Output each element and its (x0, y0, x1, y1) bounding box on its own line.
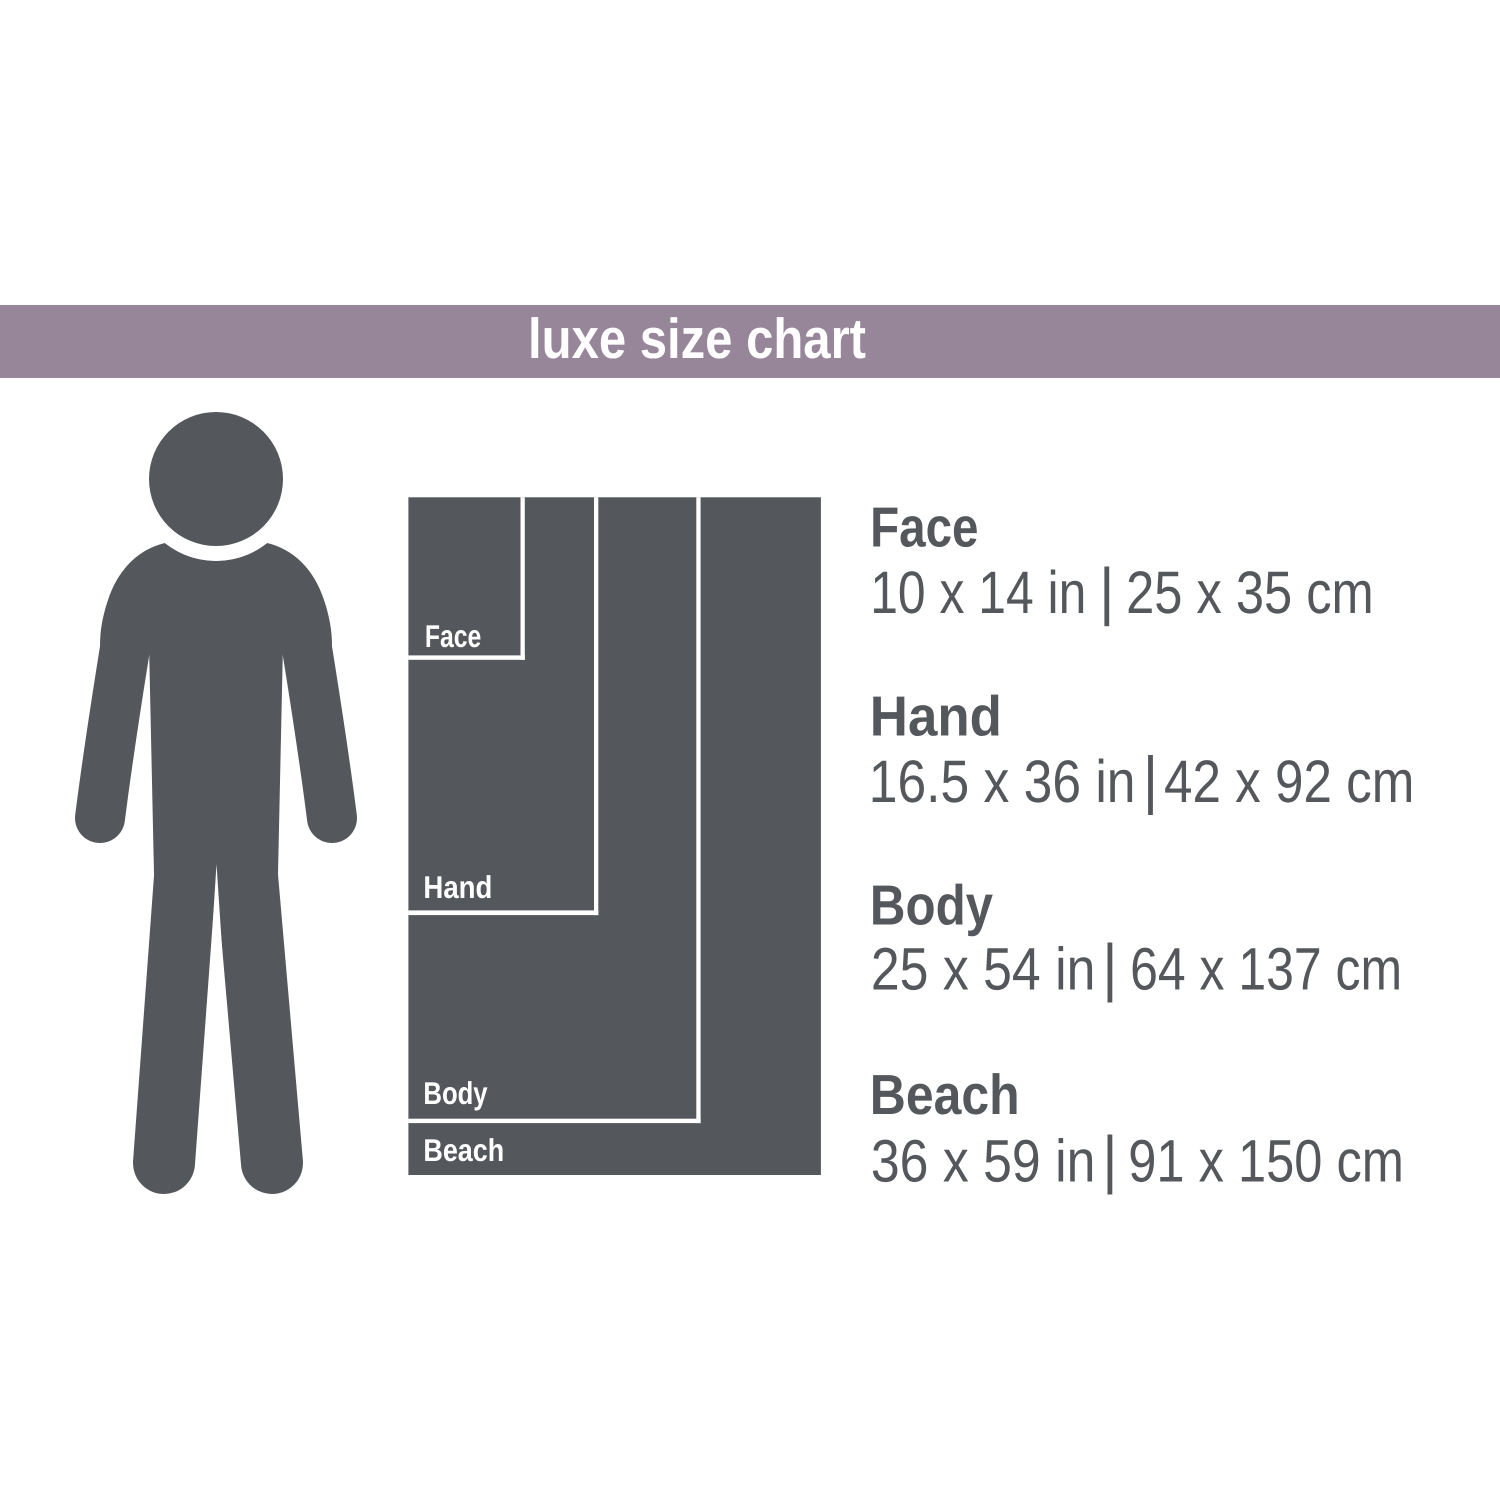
svg-text:Hand: Hand (870, 684, 1002, 747)
svg-text:Beach: Beach (870, 1063, 1020, 1126)
svg-text:luxe size chart: luxe size chart (528, 307, 866, 370)
svg-text:91 x 150 cm: 91 x 150 cm (1128, 1128, 1404, 1195)
svg-text:Body: Body (423, 1075, 488, 1111)
svg-text:Face: Face (425, 618, 481, 654)
svg-text:25 x 54 in: 25 x 54 in (871, 936, 1096, 1003)
svg-text:Face: Face (870, 496, 978, 559)
svg-text:64 x 137 cm: 64 x 137 cm (1130, 936, 1402, 1003)
svg-text:42 x 92 cm: 42 x 92 cm (1164, 748, 1414, 815)
svg-text:Hand: Hand (423, 869, 492, 905)
svg-text:Body: Body (870, 874, 994, 937)
svg-text:36 x 59 in: 36 x 59 in (871, 1128, 1096, 1195)
svg-text:16.5 x 36 in: 16.5 x 36 in (869, 748, 1136, 815)
svg-text:25 x 35 cm: 25 x 35 cm (1126, 559, 1374, 626)
svg-text:Beach: Beach (423, 1132, 504, 1168)
svg-text:10 x 14 in: 10 x 14 in (870, 559, 1086, 626)
